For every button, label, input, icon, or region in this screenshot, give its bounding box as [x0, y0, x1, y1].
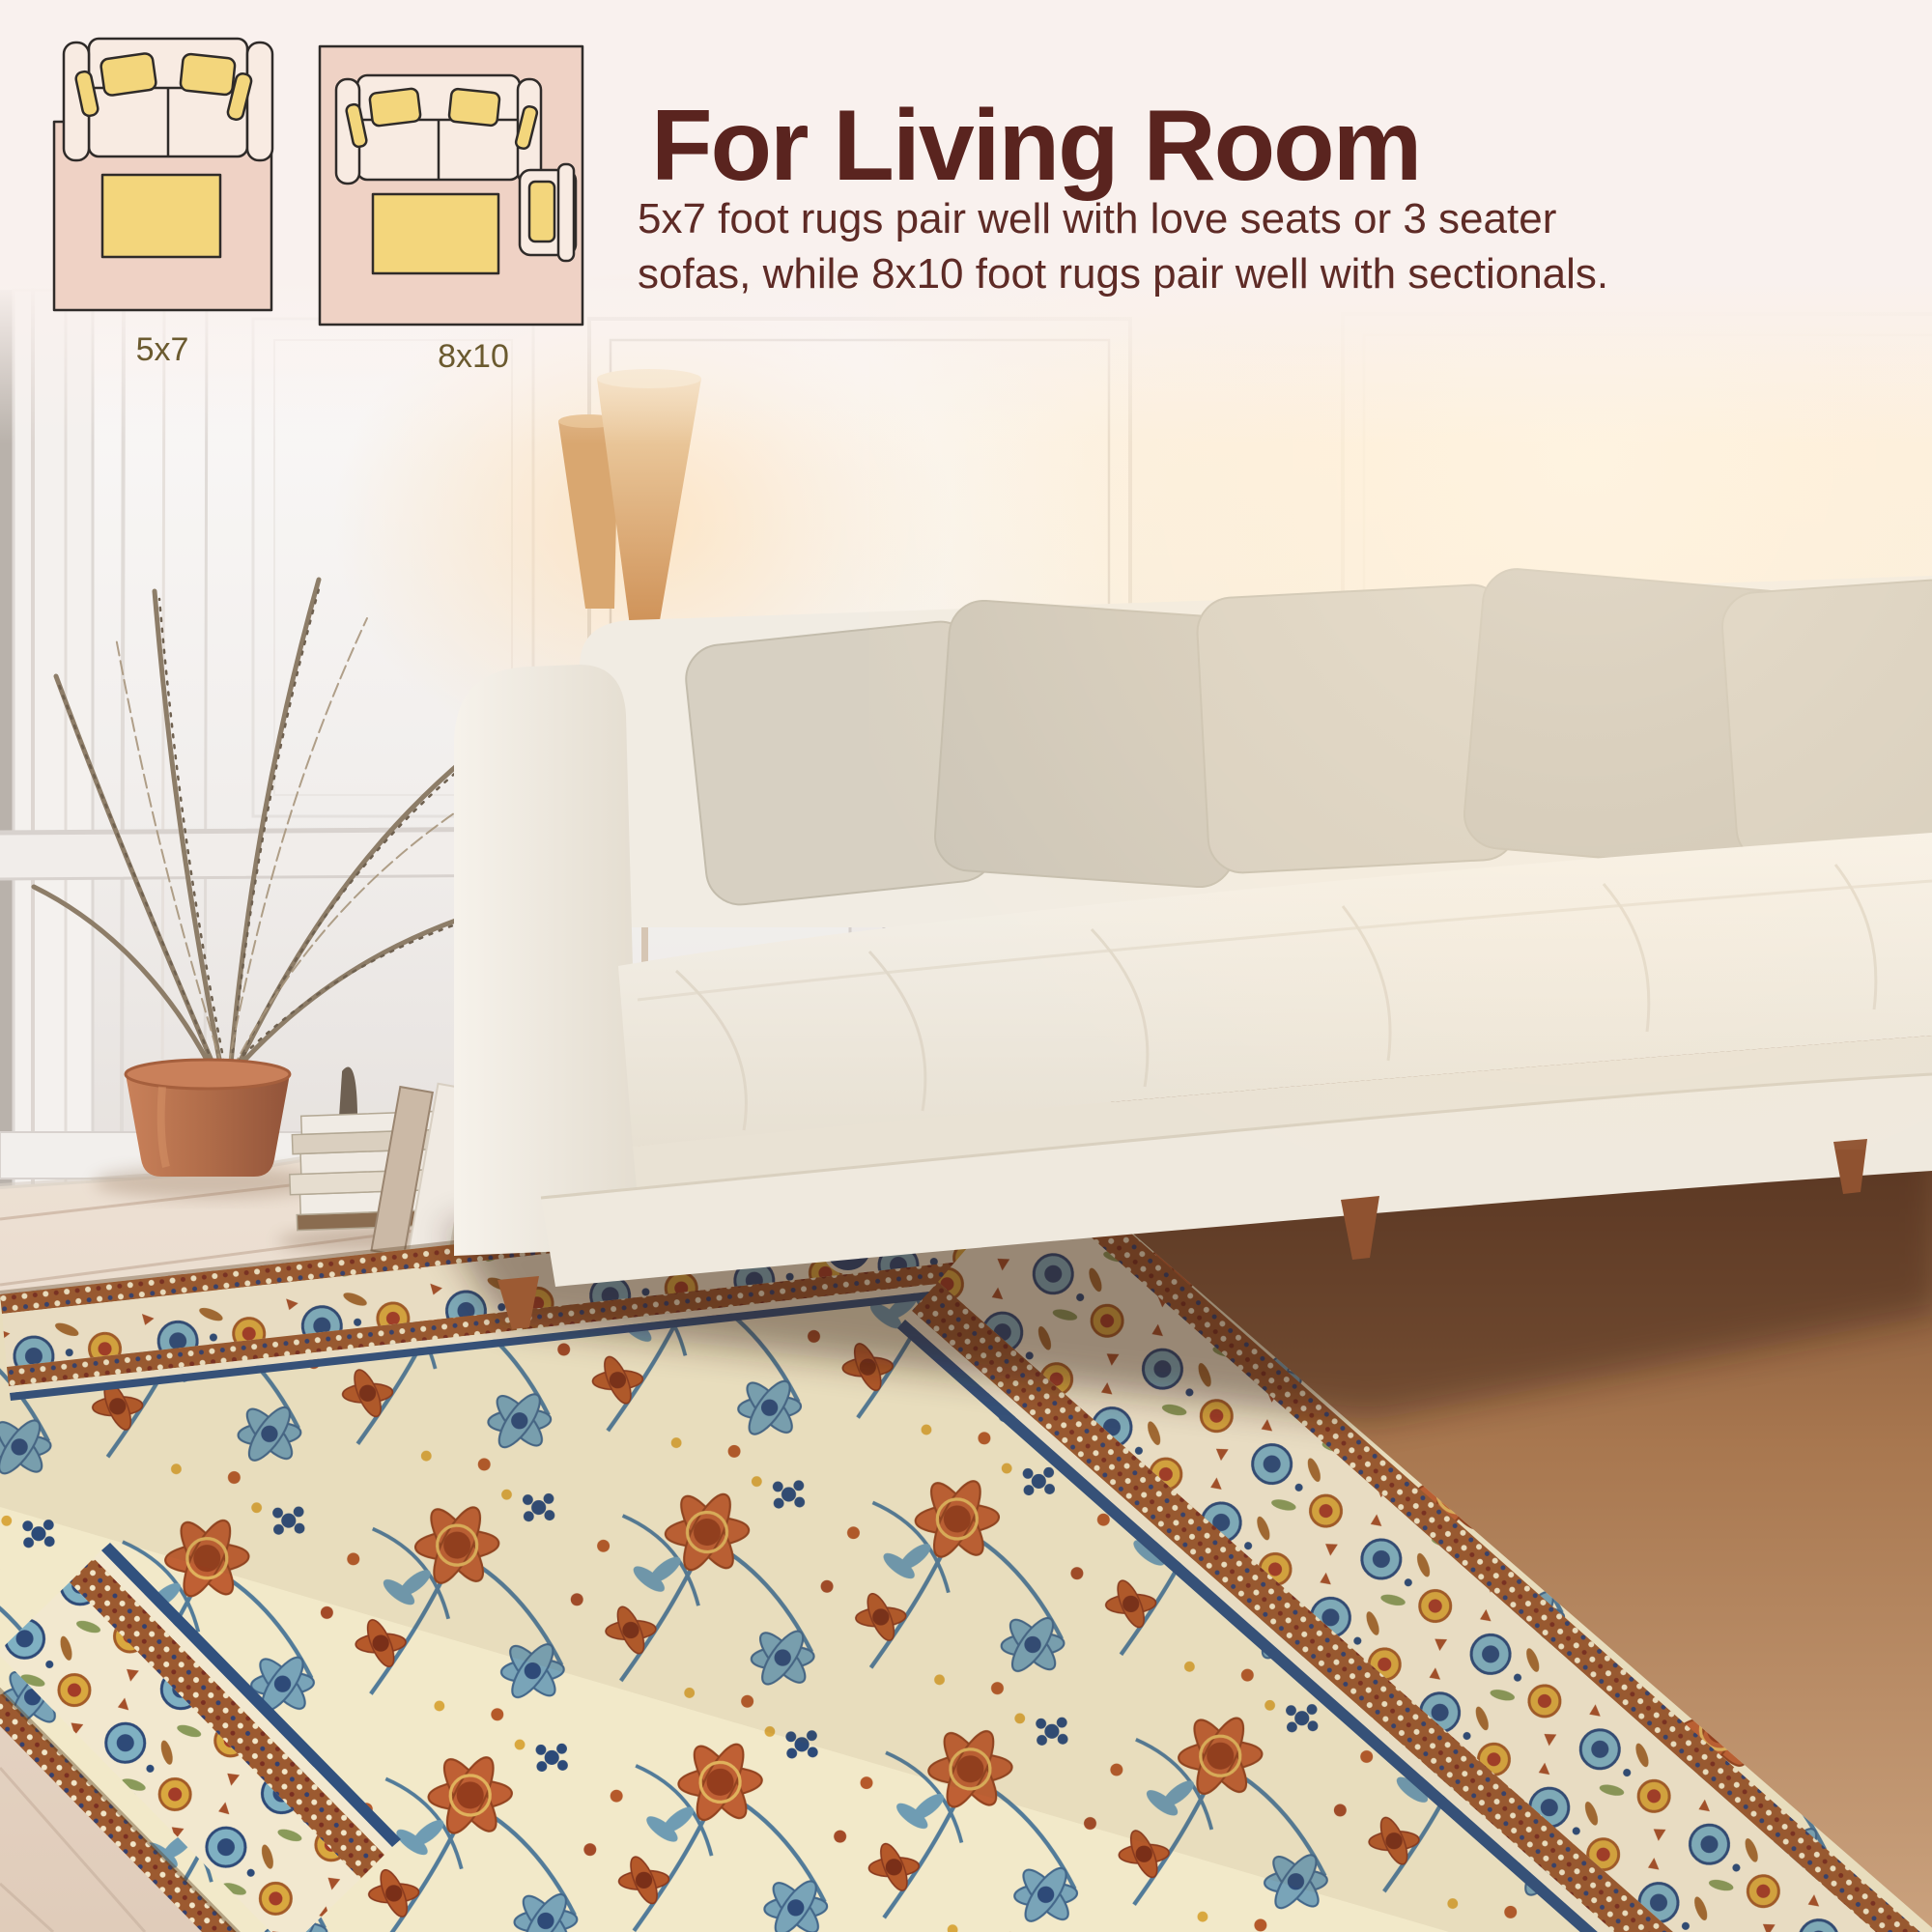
page-title: For Living Room: [651, 89, 1420, 204]
diagram-5x7-sofa: [64, 39, 272, 160]
diagram-8x10: 8x10: [320, 46, 582, 375]
product-infographic: For Living Room 5x7 foot rugs pair well …: [0, 0, 1932, 1932]
diagram-8x10-label: 8x10: [438, 338, 509, 375]
diagram-5x7-label: 5x7: [136, 331, 189, 368]
diagram-8x10-table: [373, 194, 498, 273]
sofa-arm: [454, 665, 639, 1256]
rug-size-diagrams: 5x7 8x10: [17, 15, 655, 402]
subtitle-line-1: 5x7 foot rugs pair well with love seats …: [638, 191, 1608, 246]
diagram-8x10-sofa: [336, 75, 541, 184]
diagram-5x7: 5x7: [54, 39, 272, 368]
diagram-8x10-armchair: [520, 164, 576, 261]
diagram-5x7-table: [102, 175, 220, 257]
subtitle: 5x7 foot rugs pair well with love seats …: [638, 191, 1608, 301]
subtitle-line-2: sofas, while 8x10 foot rugs pair well wi…: [638, 246, 1608, 301]
